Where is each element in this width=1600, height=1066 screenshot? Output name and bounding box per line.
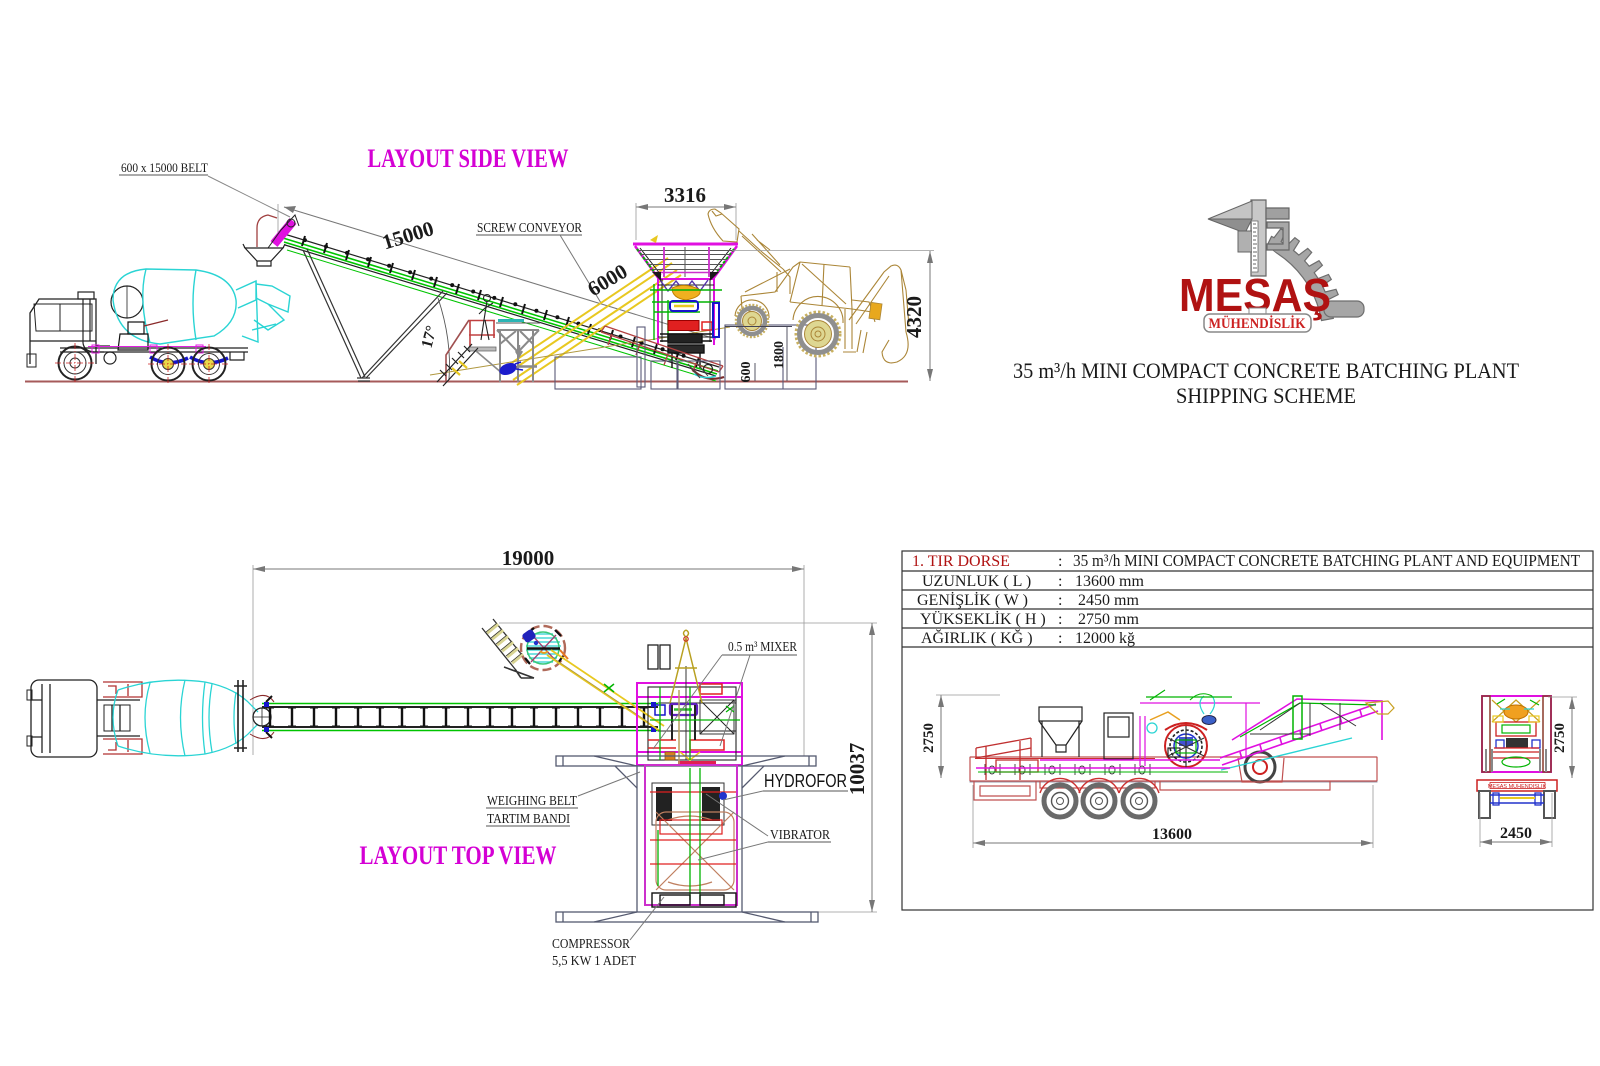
svg-text:TARTIM BANDI: TARTIM BANDI (487, 812, 570, 827)
svg-text:2750: 2750 (921, 723, 937, 753)
svg-text:HYDROFOR: HYDROFOR (764, 771, 847, 791)
svg-text:2750 mm: 2750 mm (1078, 611, 1139, 628)
svg-text:13600: 13600 (1152, 826, 1192, 843)
svg-text:MESAS MUHENDISLIK: MESAS MUHENDISLIK (1488, 784, 1547, 790)
svg-text:35 m³/h MINI COMPACT CONCRETE: 35 m³/h MINI COMPACT CONCRETE BATCHING P… (1013, 358, 1520, 383)
svg-text:600 x 15000 BELT: 600 x 15000 BELT (121, 160, 208, 175)
svg-text:UZUNLUK ( L ): UZUNLUK ( L ) (922, 573, 1031, 590)
svg-text:600: 600 (739, 362, 754, 383)
svg-text:VIBRATOR: VIBRATOR (770, 828, 831, 843)
svg-text::: : (1058, 592, 1062, 609)
svg-text:AĞIRLIK ( KĞ ): AĞIRLIK ( KĞ ) (921, 628, 1033, 647)
svg-text:2750: 2750 (1552, 723, 1568, 753)
svg-text:3316: 3316 (664, 183, 706, 207)
svg-text:WEIGHING BELT: WEIGHING BELT (487, 794, 577, 809)
svg-text:SHIPPING SCHEME: SHIPPING SCHEME (1176, 383, 1356, 408)
svg-text:4320: 4320 (902, 296, 926, 338)
svg-text:LAYOUT TOP VIEW: LAYOUT TOP VIEW (360, 841, 557, 870)
svg-text::: : (1058, 573, 1062, 590)
svg-text:1. TIR DORSE: 1. TIR DORSE (912, 553, 1010, 570)
svg-text::: : (1058, 611, 1062, 628)
svg-text:2450: 2450 (1500, 825, 1532, 842)
svg-text:MÜHENDİSLİK: MÜHENDİSLİK (1209, 315, 1306, 332)
svg-text::: : (1058, 630, 1062, 647)
svg-text:12000 kğ: 12000 kğ (1075, 630, 1135, 647)
svg-text:0.5 m³ MIXER: 0.5 m³ MIXER (728, 640, 798, 655)
svg-text:19000: 19000 (502, 546, 555, 570)
svg-text:YÜKSEKLİK ( H ): YÜKSEKLİK ( H ) (920, 610, 1046, 628)
svg-text:COMPRESSOR: COMPRESSOR (552, 937, 631, 952)
svg-text:10037: 10037 (845, 743, 869, 796)
svg-text:GENİŞLİK ( W ): GENİŞLİK ( W ) (917, 591, 1028, 609)
svg-text:SCREW CONVEYOR: SCREW CONVEYOR (477, 221, 583, 236)
svg-text::: : (1058, 553, 1062, 570)
svg-text:13600 mm: 13600 mm (1075, 573, 1144, 590)
svg-text:1800: 1800 (772, 341, 787, 369)
svg-text:35 m³/h MINI COMPACT CONCRETE: 35 m³/h MINI COMPACT CONCRETE BATCHING P… (1073, 551, 1580, 570)
svg-text:2450 mm: 2450 mm (1078, 592, 1139, 609)
svg-text:LAYOUT SIDE VIEW: LAYOUT SIDE VIEW (368, 144, 569, 173)
svg-text:5,5 KW 1 ADET: 5,5 KW 1 ADET (552, 954, 636, 969)
